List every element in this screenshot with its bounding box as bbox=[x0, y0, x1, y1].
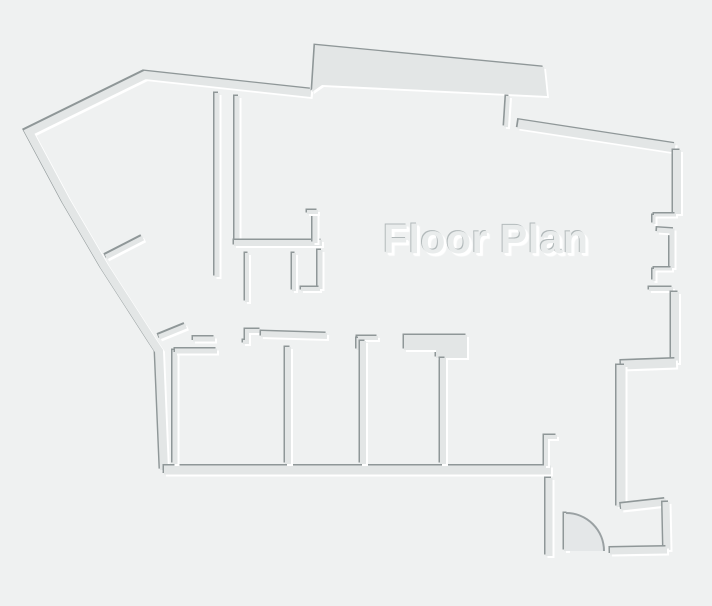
diagonal-stub2-wall bbox=[158, 325, 189, 340]
hallway-dash-wall bbox=[192, 338, 218, 342]
diagonal-stub1-wall bbox=[105, 237, 146, 260]
bottom-wall bbox=[163, 469, 554, 473]
core-wall-c bbox=[319, 249, 323, 292]
entry-left-wall bbox=[548, 477, 552, 559]
floor-plan-title: Floor Plan bbox=[383, 216, 588, 263]
window-notch2-bottom bbox=[648, 288, 676, 292]
core-wall-b bbox=[236, 95, 240, 244]
window-notch1-side bbox=[653, 214, 657, 227]
entry-nook-right-wall bbox=[665, 501, 670, 553]
rooms-top-thick-wall bbox=[403, 334, 470, 361]
room1-top-wall bbox=[174, 350, 220, 354]
core-riser-hook bbox=[306, 211, 321, 215]
core-stub-b bbox=[293, 252, 297, 294]
rooms-top-long-wall bbox=[260, 333, 330, 339]
top-bay-wall bbox=[311, 44, 550, 99]
right-wall-upper bbox=[676, 149, 680, 217]
room-divider1-wall bbox=[287, 346, 291, 467]
entry-sill-wall bbox=[609, 549, 670, 554]
core-bottom-wall bbox=[233, 242, 325, 246]
right-wall-middle bbox=[656, 229, 675, 271]
right-step-wall bbox=[620, 362, 679, 368]
outer-top-right-wall bbox=[517, 123, 678, 151]
core-wall-a bbox=[216, 92, 220, 280]
room1-left-wall bbox=[174, 349, 178, 467]
outer-left-wall bbox=[28, 74, 314, 473]
right-wall-lower bbox=[674, 291, 678, 366]
entry-nook-top-wall bbox=[620, 501, 669, 510]
right-wing-wall bbox=[620, 364, 624, 510]
bay-end-stub-wall bbox=[505, 95, 511, 130]
window-notch1-top bbox=[653, 214, 679, 218]
window-notch2-top bbox=[653, 268, 675, 272]
core-wall-c-foot bbox=[300, 288, 323, 292]
entry-door-swing bbox=[566, 513, 604, 551]
core-stub-a bbox=[246, 252, 250, 305]
room-divider3-wall bbox=[442, 357, 446, 467]
window-notch2-side bbox=[653, 268, 657, 284]
floor-plan-stage: Floor Plan bbox=[0, 0, 712, 606]
hall-stub-wall bbox=[545, 436, 560, 469]
floor-plan-canvas bbox=[0, 0, 712, 606]
room-divider2-wall bbox=[362, 340, 366, 467]
